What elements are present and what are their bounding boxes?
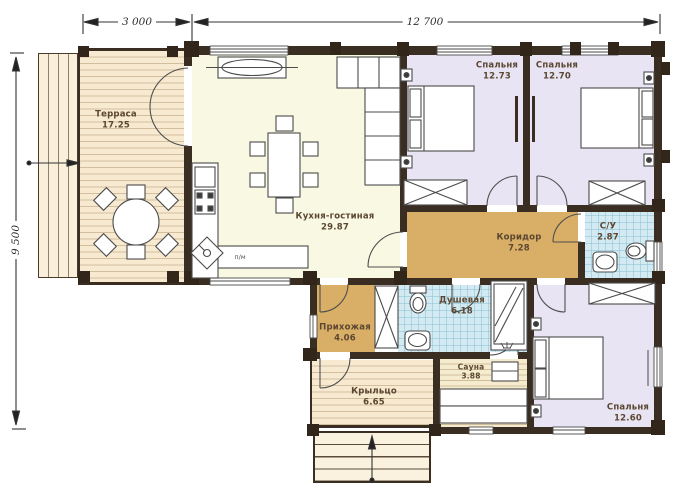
room-label-shower-room: Душевая 6.18 [439, 295, 485, 316]
room-label-sauna: Сауна 3.88 [458, 363, 485, 382]
room-label-corridor: Коридор 7.28 [496, 232, 541, 253]
room-label-porch: Крыльцо 6.65 [351, 386, 397, 407]
room-label-bedroom2: Спальня 12.70 [536, 60, 578, 81]
labels-layer: 3 000 12 700 9 500 Терраса 17.25 Кухня-г… [0, 0, 682, 502]
room-label-kitchen-living: Кухня-гостиная 29.87 [296, 211, 375, 232]
dim-label-9500: 9 500 [10, 221, 22, 259]
room-label-bedroom1: Спальня 12.73 [476, 60, 518, 81]
floor-plan: 3 000 12 700 9 500 Терраса 17.25 Кухня-г… [0, 0, 682, 502]
dim-label-3000: 3 000 [118, 16, 156, 28]
room-label-terrace: Терраса 17.25 [95, 109, 137, 130]
dim-label-12700: 12 700 [403, 16, 448, 28]
room-label-bathroom: С/У 2.87 [597, 221, 619, 242]
dishwasher-label: п/м [234, 253, 245, 261]
room-label-hallway: Прихожая 4.06 [319, 322, 371, 343]
room-label-bedroom3: Спальня 12.60 [607, 402, 649, 423]
